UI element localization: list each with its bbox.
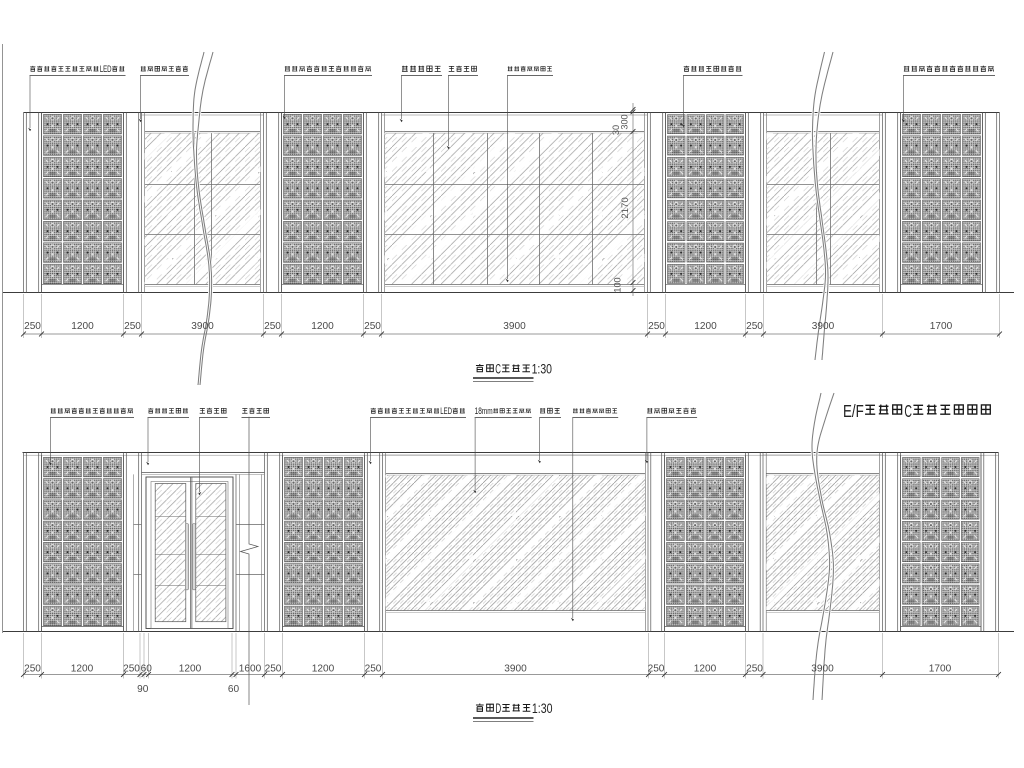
svg-text:LED: LED xyxy=(440,406,452,416)
svg-text:250: 250 xyxy=(264,321,281,332)
svg-text:300: 300 xyxy=(620,114,630,129)
svg-text:E/F: E/F xyxy=(843,401,864,421)
svg-text:250: 250 xyxy=(364,321,381,332)
svg-text:D: D xyxy=(496,701,502,716)
svg-text:C: C xyxy=(904,401,912,421)
svg-text:250: 250 xyxy=(648,664,665,675)
svg-text:3900: 3900 xyxy=(811,664,834,675)
svg-text:1200: 1200 xyxy=(311,321,334,332)
svg-text:250: 250 xyxy=(746,664,763,675)
svg-text:1200: 1200 xyxy=(694,321,717,332)
svg-text:250: 250 xyxy=(648,321,665,332)
svg-text:3900: 3900 xyxy=(191,321,214,332)
svg-text:1200: 1200 xyxy=(179,664,202,675)
svg-text:1:30: 1:30 xyxy=(532,701,553,716)
svg-text:LED: LED xyxy=(100,64,112,74)
svg-text:1200: 1200 xyxy=(694,664,717,675)
svg-text:18mm: 18mm xyxy=(475,406,493,416)
svg-text:250: 250 xyxy=(265,664,282,675)
svg-text:1:30: 1:30 xyxy=(532,362,552,377)
svg-text:3900: 3900 xyxy=(503,321,526,332)
svg-text:1200: 1200 xyxy=(71,664,94,675)
svg-text:250: 250 xyxy=(746,321,763,332)
svg-text:1700: 1700 xyxy=(929,664,952,675)
svg-text:250: 250 xyxy=(365,664,382,675)
svg-text:30: 30 xyxy=(611,125,621,135)
svg-text:1700: 1700 xyxy=(930,321,953,332)
svg-text:250: 250 xyxy=(123,664,140,675)
svg-text:1600: 1600 xyxy=(239,664,262,675)
svg-text:1200: 1200 xyxy=(71,321,94,332)
svg-text:90: 90 xyxy=(137,684,149,695)
svg-text:250: 250 xyxy=(124,321,141,332)
svg-text:2170: 2170 xyxy=(620,197,631,218)
svg-text:60: 60 xyxy=(228,684,240,695)
svg-text:3900: 3900 xyxy=(812,321,835,332)
svg-text:3900: 3900 xyxy=(504,664,527,675)
svg-text:100: 100 xyxy=(613,277,623,292)
svg-text:250: 250 xyxy=(24,664,41,675)
svg-text:C: C xyxy=(495,362,501,377)
svg-text:1200: 1200 xyxy=(312,664,335,675)
svg-text:250: 250 xyxy=(24,321,41,332)
svg-text:60: 60 xyxy=(141,664,153,675)
